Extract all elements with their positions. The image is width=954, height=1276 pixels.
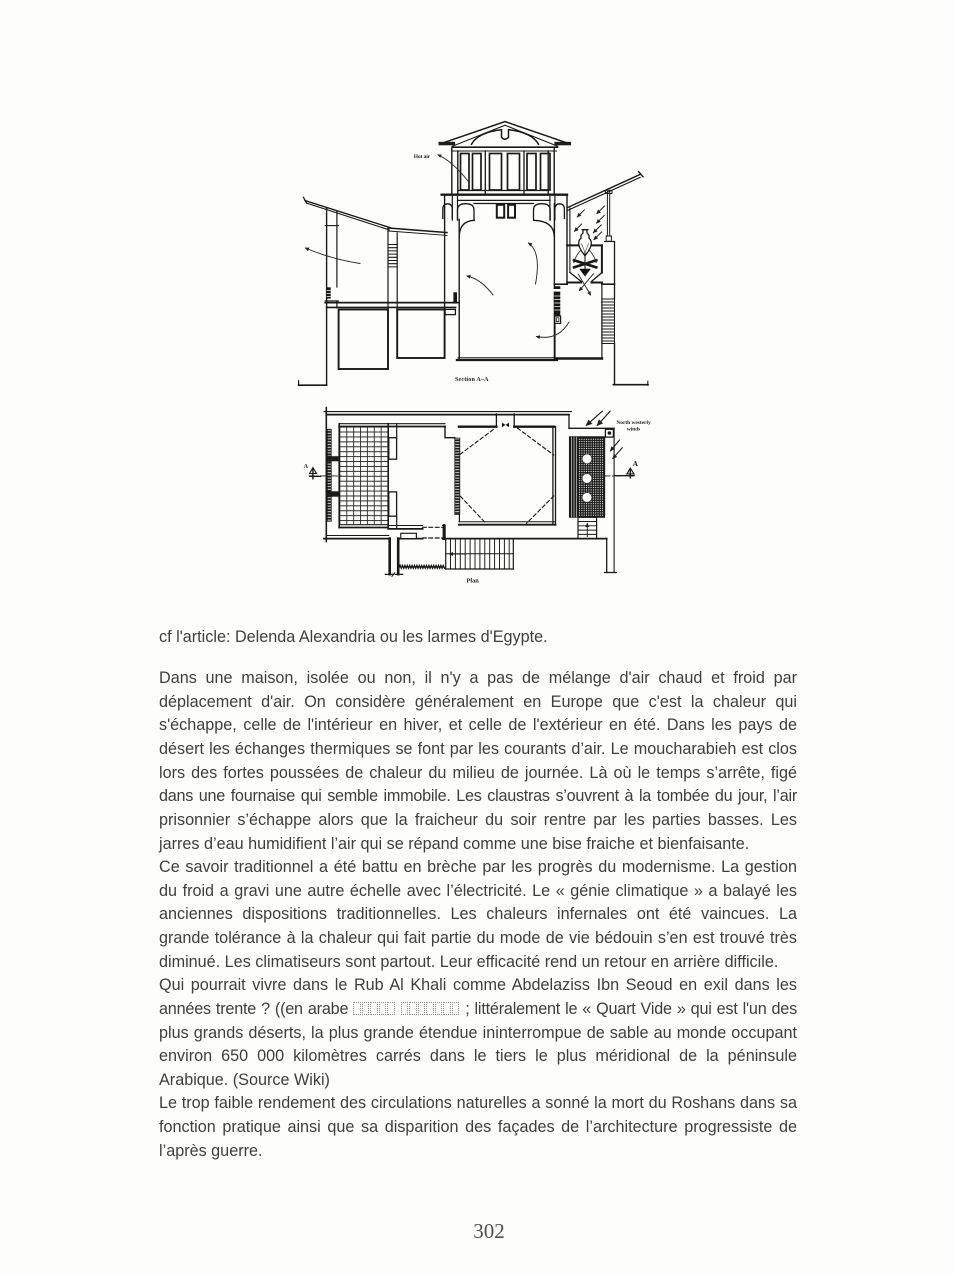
svg-text:Hot air: Hot air (414, 154, 431, 160)
svg-text:Plan: Plan (467, 577, 480, 584)
svg-text:Section A–A: Section A–A (455, 377, 489, 383)
svg-text:winds: winds (627, 426, 641, 432)
svg-text:North westerly: North westerly (616, 420, 651, 426)
svg-text:A: A (304, 464, 309, 470)
svg-text:A: A (633, 459, 639, 468)
